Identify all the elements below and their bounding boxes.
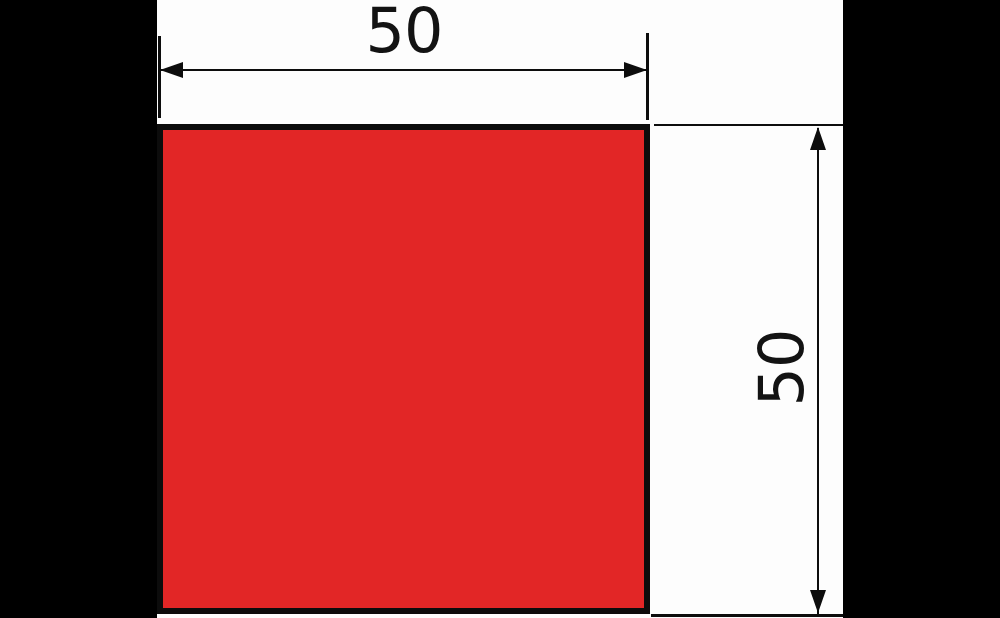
arrowhead-up-icon <box>810 127 826 150</box>
drawing-stage: 50 50 <box>0 0 1000 618</box>
arrowhead-down-icon <box>810 590 826 613</box>
dimension-line-horizontal <box>161 69 647 71</box>
arrowhead-left-icon <box>160 62 183 78</box>
dimension-label-width: 50 <box>334 0 474 62</box>
extension-line-right-bottom <box>651 614 843 617</box>
extension-line-right-top <box>654 124 843 126</box>
letterbox-right <box>843 0 1000 618</box>
arrowhead-right-icon <box>624 62 647 78</box>
dimension-label-height: 50 <box>751 298 813 438</box>
letterbox-left <box>0 0 157 618</box>
red-square <box>157 124 650 614</box>
